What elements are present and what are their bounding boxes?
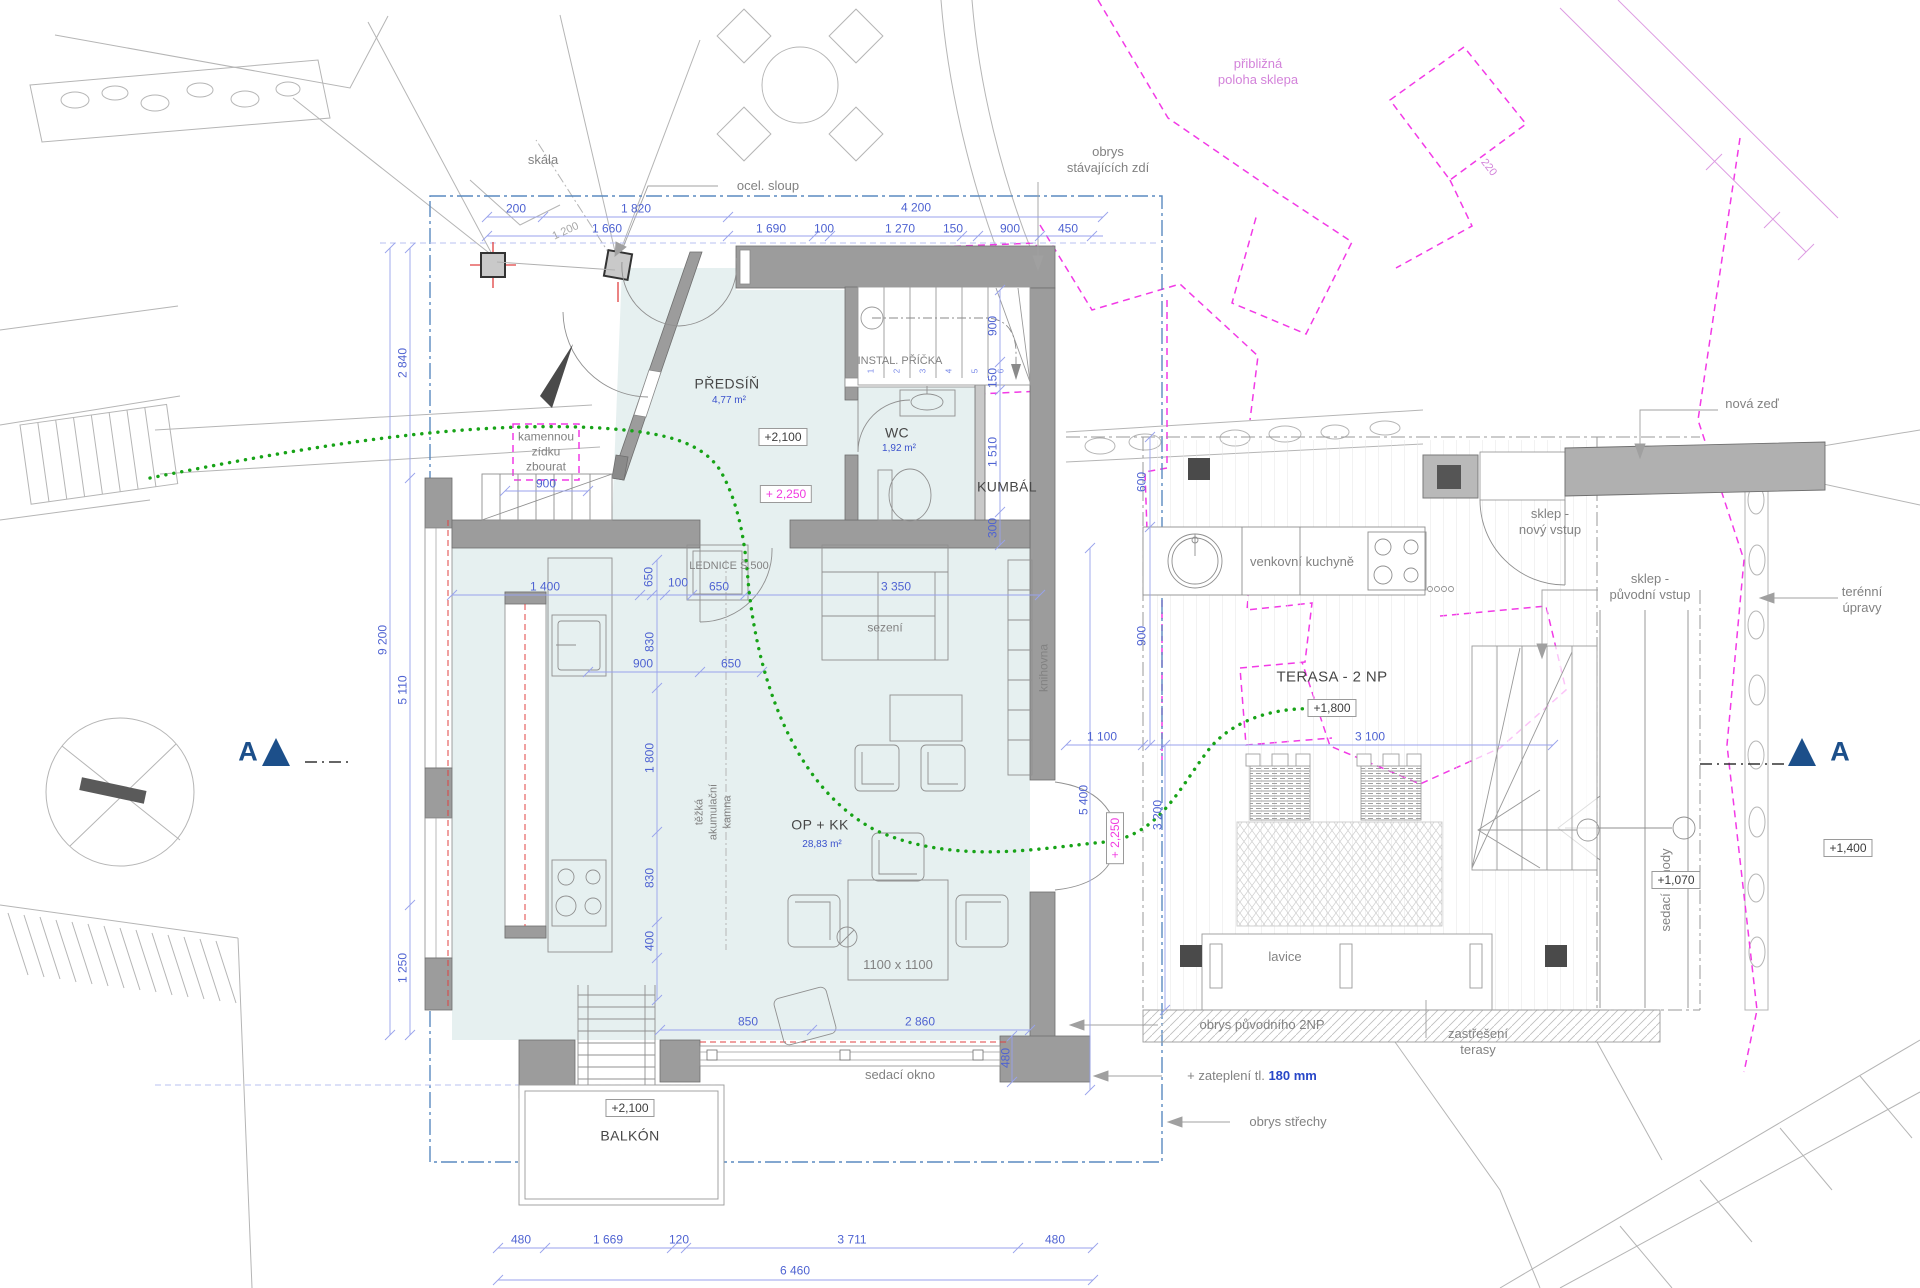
section-triangle — [1788, 738, 1816, 766]
dim-label: 480 — [999, 1048, 1014, 1068]
elevation-schody: +1,070 — [1651, 871, 1700, 889]
label-lavice: lavice — [1268, 949, 1301, 965]
dim-label: 5 400 — [1077, 785, 1092, 815]
floor-plan-drawing: skála ocel. sloup obrys stávajících zdí … — [0, 0, 1920, 1288]
dim-label: 480 — [511, 1233, 531, 1248]
section-letter-left: A — [238, 737, 258, 768]
steel-columns — [481, 250, 632, 280]
dim-label: 900 — [536, 477, 556, 492]
label-table-size: 1100 x 1100 — [863, 957, 933, 973]
dim-label: 100 — [668, 576, 688, 591]
elevation-terasa: +1,800 — [1307, 699, 1356, 717]
section-triangle — [262, 738, 290, 766]
label-skala: skála — [528, 152, 558, 168]
label-venkovni-kuchyne: venkovní kuchyně — [1250, 554, 1354, 570]
dim-label: 1 820 — [621, 202, 651, 217]
label-zastreseni: zastřešení terasy — [1448, 1026, 1508, 1059]
room-predsin-area: 4,77 m² — [712, 395, 746, 408]
label-zatepleni: + zateplení tl. 180 mm — [1187, 1068, 1317, 1084]
stair-number: 4 — [945, 369, 954, 373]
dim-label: 900 — [1135, 626, 1150, 646]
dim-label: 450 — [1058, 222, 1078, 237]
label-lednice: LEDNICE Š.500 — [689, 560, 768, 574]
stair-number: 5 — [971, 369, 980, 373]
dim-label: 400 — [643, 931, 658, 951]
terrace — [1066, 437, 1825, 1042]
dim-label: 2 860 — [905, 1015, 935, 1030]
stair-number: 3 — [919, 369, 928, 373]
dim-label: 900 — [986, 316, 1001, 336]
elevation-predsin: +2,100 — [758, 428, 807, 446]
dim-label: 3 100 — [1355, 730, 1385, 745]
new-wall — [1565, 442, 1825, 496]
dim-label: 850 — [738, 1015, 758, 1030]
dim-label: 2 840 — [396, 348, 411, 378]
dim-label: 150 — [943, 222, 963, 237]
label-sedaci-schody: sedací schody — [1658, 848, 1674, 931]
label-zatepleni-value: 180 mm — [1268, 1068, 1316, 1083]
dim-label: 600 — [1135, 472, 1150, 492]
dim-label: 650 — [709, 580, 729, 595]
dim-label: 200 — [506, 202, 526, 217]
label-nova-zed: nová zeď — [1725, 396, 1779, 412]
label-sklep-puv: sklep - původní vstup — [1610, 571, 1691, 604]
elevation-vstup: + 2,250 — [760, 485, 812, 503]
label-zatepleni-text: + zateplení tl. — [1187, 1068, 1268, 1083]
dim-label: 100 — [814, 222, 834, 237]
dim-label: 1 100 — [1087, 730, 1117, 745]
dim-label: 830 — [643, 632, 658, 652]
dim-label: 3 200 — [1151, 800, 1166, 830]
north-arrow — [540, 344, 573, 408]
room-terasa: TERASA - 2 NP — [1276, 669, 1387, 688]
label-sezeni: sezení — [867, 621, 902, 636]
cellar-stair — [1472, 646, 1599, 870]
label-zidka: kamennou zídku zbourat — [518, 430, 574, 475]
dim-label: 480 — [1045, 1233, 1065, 1248]
post — [1545, 945, 1567, 967]
post — [1180, 945, 1202, 967]
label-obrys-zdi: obrys stávajících zdí — [1067, 144, 1149, 177]
label-sedaci-okno: sedací okno — [865, 1067, 935, 1083]
stair-number: 2 — [893, 369, 902, 373]
dim-label: 650 — [642, 567, 657, 587]
elevation-vstup2: + 2,250 — [1106, 812, 1124, 864]
dim-label: 650 — [721, 657, 741, 672]
section-letter-right: A — [1830, 737, 1850, 768]
post — [1437, 465, 1461, 489]
room-predsin: PŘEDSÍŇ — [694, 375, 759, 393]
stair-number: 1 — [867, 369, 876, 373]
label-ocel-sloup: ocel. sloup — [737, 178, 799, 194]
dim-label: 1 800 — [643, 743, 658, 773]
dim-label: 1 690 — [756, 222, 786, 237]
room-kumbal: KUMBÁL — [977, 478, 1037, 496]
dim-label: 1 669 — [593, 1233, 623, 1248]
dim-label: 6 460 — [780, 1264, 810, 1279]
dim-label: 3 350 — [881, 580, 911, 595]
label-instal-pricka: INSTAL. PŘÍČKA — [858, 355, 943, 369]
room-op-kk: OP + KK — [791, 816, 848, 834]
dim-label: 3 711 — [837, 1233, 866, 1248]
dim-label: 1 400 — [530, 580, 560, 595]
label-obrys-2np: obrys původního 2NP — [1199, 1017, 1324, 1033]
cellar-dim-violet — [1560, 0, 1838, 260]
label-obrys-strechy: obrys střechy — [1249, 1114, 1326, 1130]
post — [1188, 458, 1210, 480]
dim-label: 150 — [986, 368, 1001, 388]
room-wc: WC — [885, 424, 909, 442]
label-pribl-sklep: přibližná poloha sklepa — [1218, 56, 1298, 89]
dim-label: 120 — [669, 1233, 689, 1248]
dim-label: 300 — [986, 518, 1001, 538]
dim-label: 900 — [633, 657, 653, 672]
sklep-new-opening — [1480, 452, 1565, 500]
dim-label: 1 510 — [986, 437, 1001, 467]
dim-label: 5 110 — [396, 675, 411, 704]
elevation-zed: +1,400 — [1823, 839, 1872, 857]
room-wc-area: 1,92 m² — [882, 443, 916, 456]
dim-label: 900 — [1000, 222, 1020, 237]
elevation-balkon: +2,100 — [605, 1099, 654, 1117]
room-op-kk-area: 28,83 m² — [802, 839, 841, 852]
dim-label: 830 — [643, 868, 658, 888]
dim-label: 1 250 — [396, 953, 411, 983]
deck-hatch — [1237, 822, 1442, 926]
bench — [1202, 934, 1492, 1010]
label-terenni-upravy: terénní úpravy — [1842, 584, 1882, 617]
label-knihovna: knihovna — [1037, 644, 1052, 692]
room-balkon: BALKÓN — [600, 1127, 659, 1145]
label-sklep-novy: sklep - nový vstup — [1519, 506, 1581, 539]
label-kamna: těžká akumulační kamna — [693, 784, 734, 840]
dim-label: 4 200 — [901, 201, 931, 216]
dim-label: 1 660 — [592, 222, 622, 237]
dim-label: 1 270 — [885, 222, 915, 237]
plan-linework — [0, 0, 1920, 1288]
dim-label: 9 200 — [376, 625, 391, 655]
